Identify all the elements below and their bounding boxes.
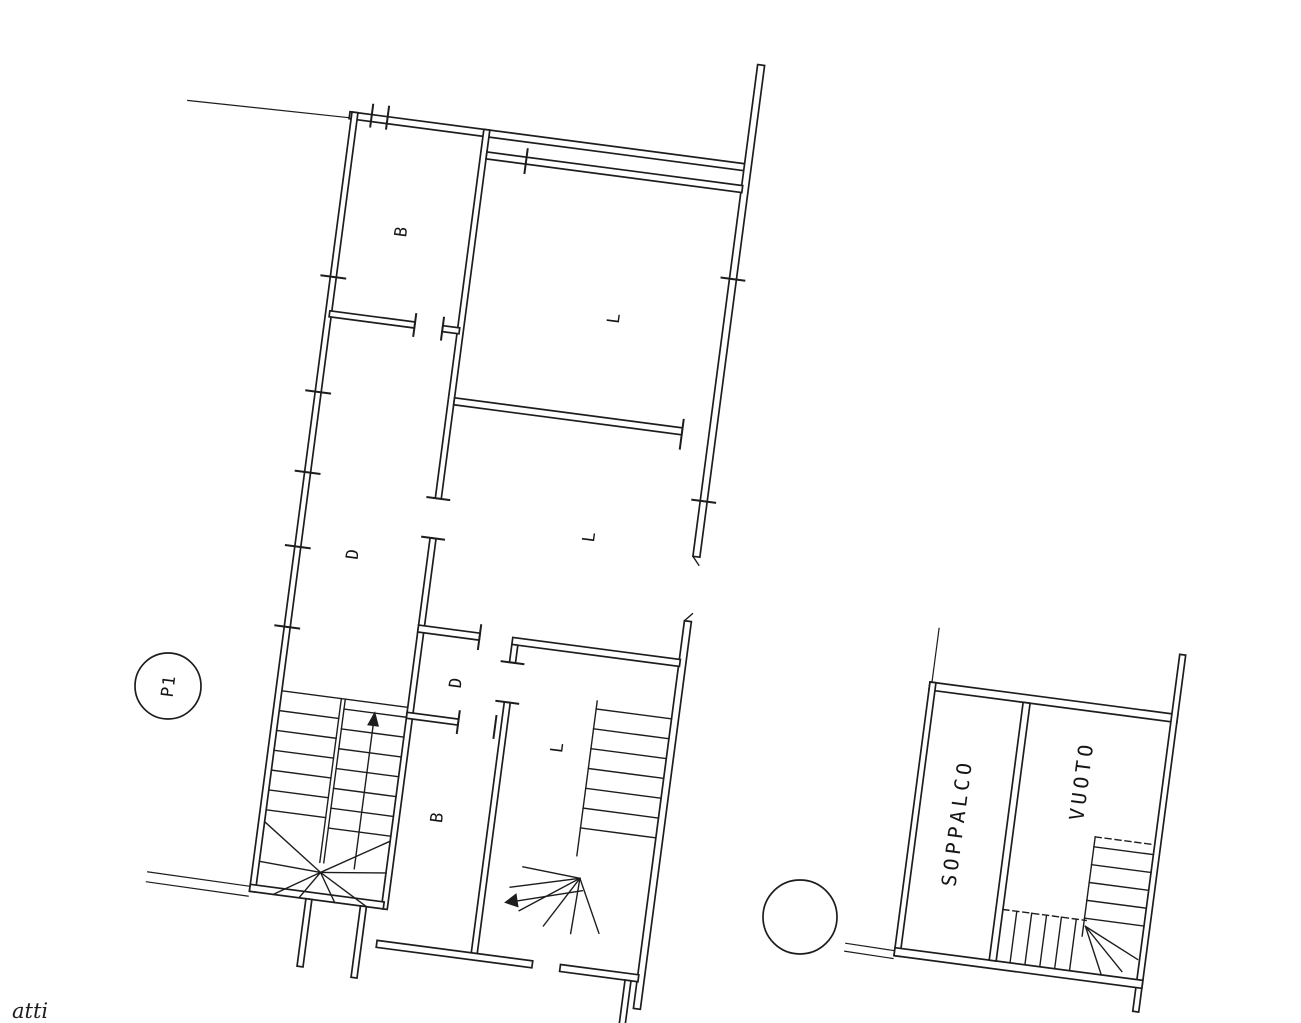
mezz-wall-right	[1133, 654, 1186, 1012]
wall-between-livings	[454, 398, 683, 435]
floor-plan-drawing: B L L D D L B SOPPAL	[0, 0, 1301, 1023]
room-label-living-bottom: L	[547, 740, 568, 754]
neighbour-line-up	[932, 628, 939, 683]
wall-spine-upper	[435, 129, 490, 499]
bath-door-jamb-1	[413, 314, 416, 336]
corridor-door-jamb-1	[427, 497, 449, 500]
wall-living-middle-bottom-left	[418, 625, 480, 640]
room-label-bath-top: B	[391, 225, 412, 239]
wall-plan-bottom-left	[376, 940, 533, 967]
scanned-floor-plan-page: B L L D D L B SOPPAL	[0, 0, 1301, 1023]
wall-column-main	[471, 702, 510, 956]
wall-corner-stub	[619, 980, 631, 1023]
bath-door-jamb-2	[441, 318, 444, 340]
mezz-wall-divider	[989, 702, 1030, 961]
entry-tick-2	[386, 107, 389, 129]
main-plan: B L L D D L B	[75, 0, 773, 1023]
wall-bath-top-bottom	[329, 311, 415, 328]
room-label-living-middle: L	[579, 530, 600, 544]
stair-direction-arrow	[354, 720, 374, 869]
room-label-void: VUOTO	[1064, 739, 1098, 822]
room-label-mezzanine: SOPPALCO	[937, 758, 978, 888]
entry-tick-1	[370, 105, 373, 127]
mezz-wall-top	[929, 682, 1178, 723]
wall-stub-below-1	[297, 899, 312, 967]
wall-right-upper	[693, 65, 765, 558]
hall-door-jamb-1	[457, 711, 460, 733]
mezzanine-plan: SOPPALCO VUOTO	[841, 616, 1185, 1012]
column-door-jamb-2	[496, 701, 518, 704]
mezz-wall-left	[894, 682, 936, 956]
neighbour-line-left-2	[844, 951, 894, 959]
column-door-jamb-1	[502, 661, 524, 664]
room-label-hall-bottom: D	[446, 676, 467, 690]
corridor-door-jamb-2	[422, 537, 444, 540]
mezz-wall-bottom	[894, 948, 1143, 989]
arrow-left-icon	[504, 892, 521, 908]
floor-badge-label: P1	[158, 674, 181, 699]
neighbour-wall-line-top	[187, 96, 351, 122]
room-label-living-top: L	[604, 311, 625, 325]
room-label-corridor: D	[343, 547, 364, 561]
wall-column-top-stub	[510, 644, 518, 663]
wall-hall-bottom	[406, 712, 458, 725]
wall-bath-top-door-stub	[442, 326, 460, 334]
neighbour-line-left-1	[845, 943, 895, 951]
floor-badge: P1	[135, 653, 201, 719]
secondary-badge-circle	[763, 880, 837, 954]
wall-spine-lower	[381, 538, 436, 910]
hall-door-jamb-2	[494, 716, 497, 738]
secondary-badge	[763, 880, 837, 954]
window-jamb-slant-2	[684, 613, 692, 622]
room-label-bath-bottom: B	[427, 810, 448, 824]
wall-stub-below-2	[351, 906, 366, 978]
wall-plan-bottom-right	[560, 965, 639, 982]
partial-handwritten-note: atti	[12, 999, 48, 1023]
mezzanine-stair	[996, 826, 1155, 979]
wall-right-lower	[633, 621, 691, 1010]
wall-living-middle-bottom-right	[512, 637, 680, 666]
